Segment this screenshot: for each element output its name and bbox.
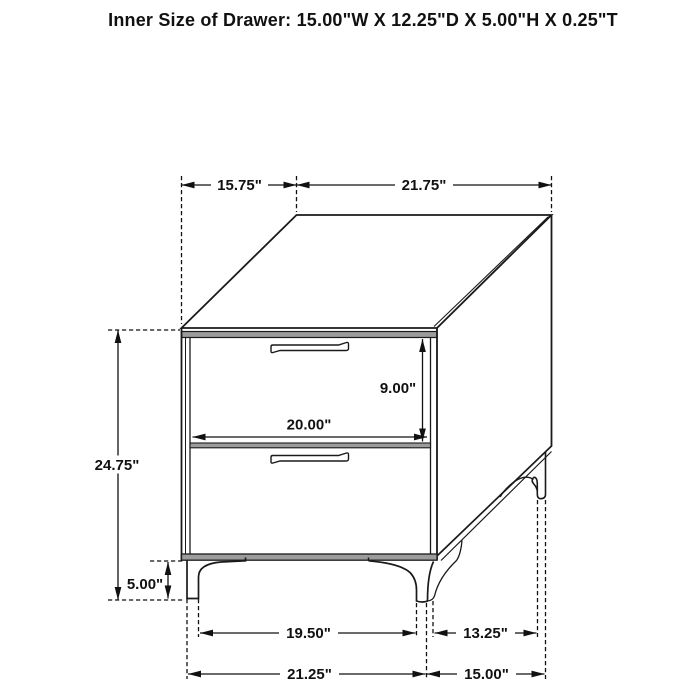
dim-drawer-width-label: 20.00" <box>287 417 332 434</box>
dim-front-leg-span: 19.50" <box>200 625 416 643</box>
back-right-leg-bracket <box>500 477 533 497</box>
dim-base-width: 21.25" <box>188 666 426 684</box>
dim-leg-height-label: 5.00" <box>127 576 163 593</box>
dim-overall-height: 24.75" <box>89 330 147 600</box>
drawer-divider-band <box>190 443 431 448</box>
dimension-annotations: 15.75" 21.75" 24.75" 5.00" 9.00" <box>89 177 552 684</box>
dim-side-leg-span: 13.25" <box>435 625 537 643</box>
dim-front-leg-span-label: 19.50" <box>286 625 331 642</box>
dim-top-width: 21.75" <box>297 177 552 195</box>
dim-leg-height: 5.00" <box>127 562 168 599</box>
dim-drawer-height-label: 9.00" <box>380 380 416 397</box>
dim-top-depth: 15.75" <box>182 177 297 195</box>
dim-drawer-height: 9.00" <box>380 339 423 442</box>
dim-overall-height-label: 24.75" <box>95 457 140 474</box>
bottom-rail-band <box>182 554 438 560</box>
dim-top-width-label: 21.75" <box>402 177 447 194</box>
furniture-dimension-diagram: 15.75" 21.75" 24.75" 5.00" 9.00" <box>0 0 700 700</box>
nightstand-drawing <box>182 215 552 602</box>
side-bottom-edge <box>438 446 552 556</box>
dim-top-depth-label: 15.75" <box>217 177 262 194</box>
drawer-2-handle <box>271 453 349 463</box>
dim-base-depth-label: 15.00" <box>464 666 509 683</box>
top-face <box>182 215 552 328</box>
dim-side-leg-span-label: 13.25" <box>463 625 508 642</box>
diagram-page: Inner Size of Drawer: 15.00"W X 12.25"D … <box>0 0 700 700</box>
dim-drawer-width: 20.00" <box>193 417 428 438</box>
top-edge-thickness-line <box>434 217 549 327</box>
dim-base-width-label: 21.25" <box>287 666 332 683</box>
drawer-1-handle <box>271 342 349 352</box>
top-front-band <box>182 332 438 338</box>
front-right-leg <box>369 561 434 602</box>
dim-base-depth: 15.00" <box>427 666 545 684</box>
front-left-leg <box>187 558 246 599</box>
side-bottom-edge-inner <box>441 452 552 561</box>
